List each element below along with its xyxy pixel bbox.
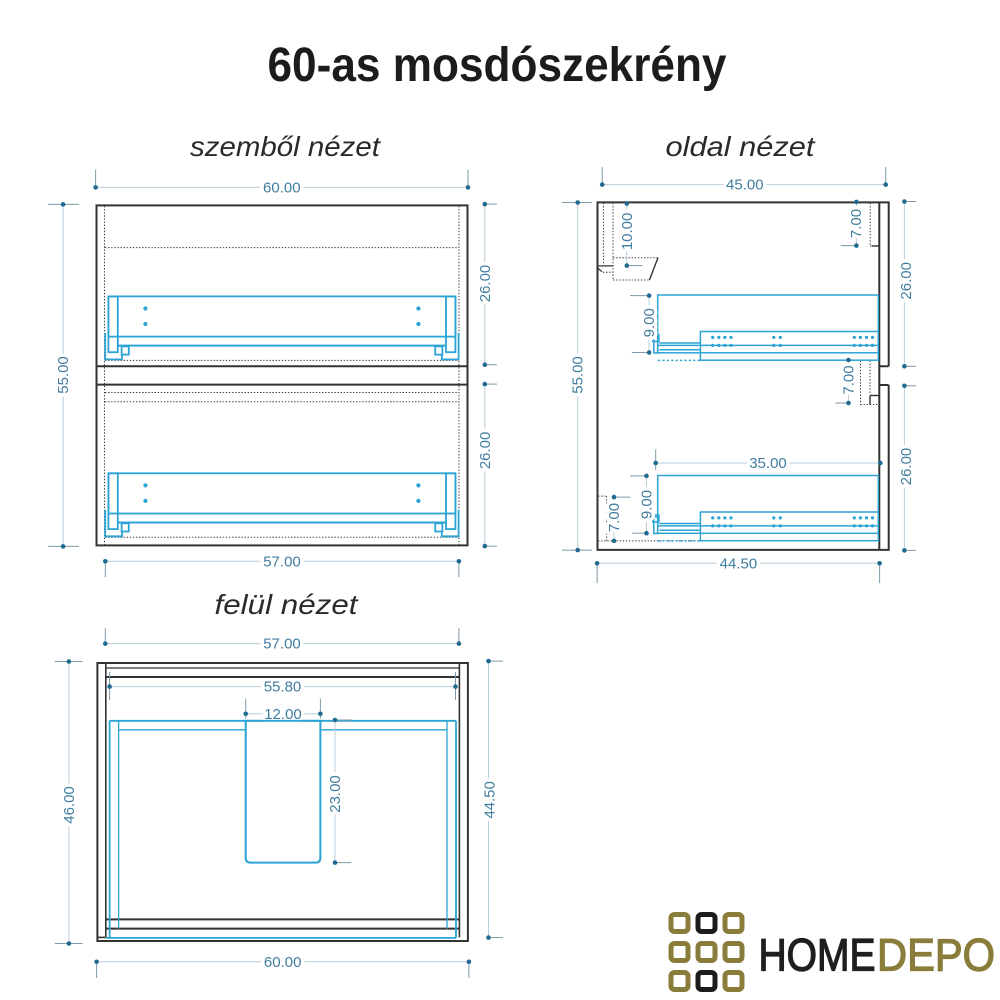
svg-text:szemből nézet: szemből nézet <box>190 131 381 162</box>
svg-text:felül nézet: felül nézet <box>215 589 359 620</box>
svg-text:9.00: 9.00 <box>641 308 658 337</box>
svg-text:60-as mosdószekrény: 60-as mosdószekrény <box>268 39 727 92</box>
svg-text:7.00: 7.00 <box>841 365 858 394</box>
svg-text:26.00: 26.00 <box>898 448 915 486</box>
svg-text:oldal nézet: oldal nézet <box>666 131 816 162</box>
svg-text:7.00: 7.00 <box>848 209 865 238</box>
svg-text:60.00: 60.00 <box>263 179 301 196</box>
svg-text:55.00: 55.00 <box>570 356 587 394</box>
svg-text:23.00: 23.00 <box>327 775 344 813</box>
svg-text:57.00: 57.00 <box>263 553 301 570</box>
svg-text:35.00: 35.00 <box>749 455 787 472</box>
svg-text:60.00: 60.00 <box>264 954 302 971</box>
svg-text:26.00: 26.00 <box>477 432 494 470</box>
svg-text:10.00: 10.00 <box>619 213 636 251</box>
svg-text:DEPO: DEPO <box>877 930 995 981</box>
svg-text:26.00: 26.00 <box>477 265 494 303</box>
svg-text:46.00: 46.00 <box>61 786 78 824</box>
svg-text:44.50: 44.50 <box>482 781 499 819</box>
svg-text:26.00: 26.00 <box>898 262 915 300</box>
svg-text:45.00: 45.00 <box>726 177 764 194</box>
svg-text:55.00: 55.00 <box>55 356 72 394</box>
svg-text:HOME: HOME <box>759 930 876 981</box>
svg-text:7.00: 7.00 <box>606 503 623 532</box>
svg-text:55.80: 55.80 <box>264 679 302 696</box>
svg-text:44.50: 44.50 <box>720 555 758 572</box>
svg-text:9.00: 9.00 <box>639 490 656 519</box>
svg-text:57.00: 57.00 <box>263 636 301 653</box>
